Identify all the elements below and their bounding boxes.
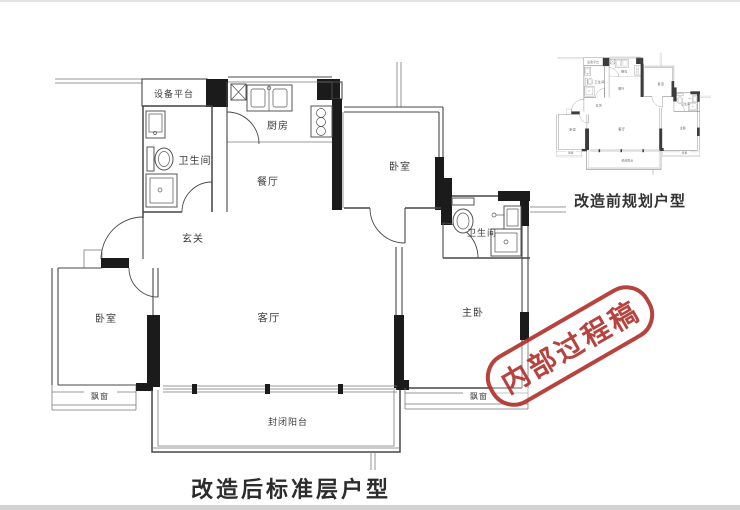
main-plan-caption: 改造后标准层户型 xyxy=(168,472,414,504)
floor-plan-svg: 设备平台 卫生间 厨房 餐厅 玄关 卧室 卫生间 客厅 卧室 主卧 飘窗 飘窗 … xyxy=(0,0,740,510)
page-bottom-border xyxy=(0,505,740,510)
main-plan xyxy=(52,62,566,470)
inset-plan xyxy=(557,53,711,175)
floor-plan-page: 设备平台 卫生间 厨房 餐厅 玄关 卧室 卫生间 客厅 卧室 主卧 飘窗 飘窗 … xyxy=(0,0,740,510)
inset-plan-caption: 改造前规划户型 xyxy=(546,190,714,211)
